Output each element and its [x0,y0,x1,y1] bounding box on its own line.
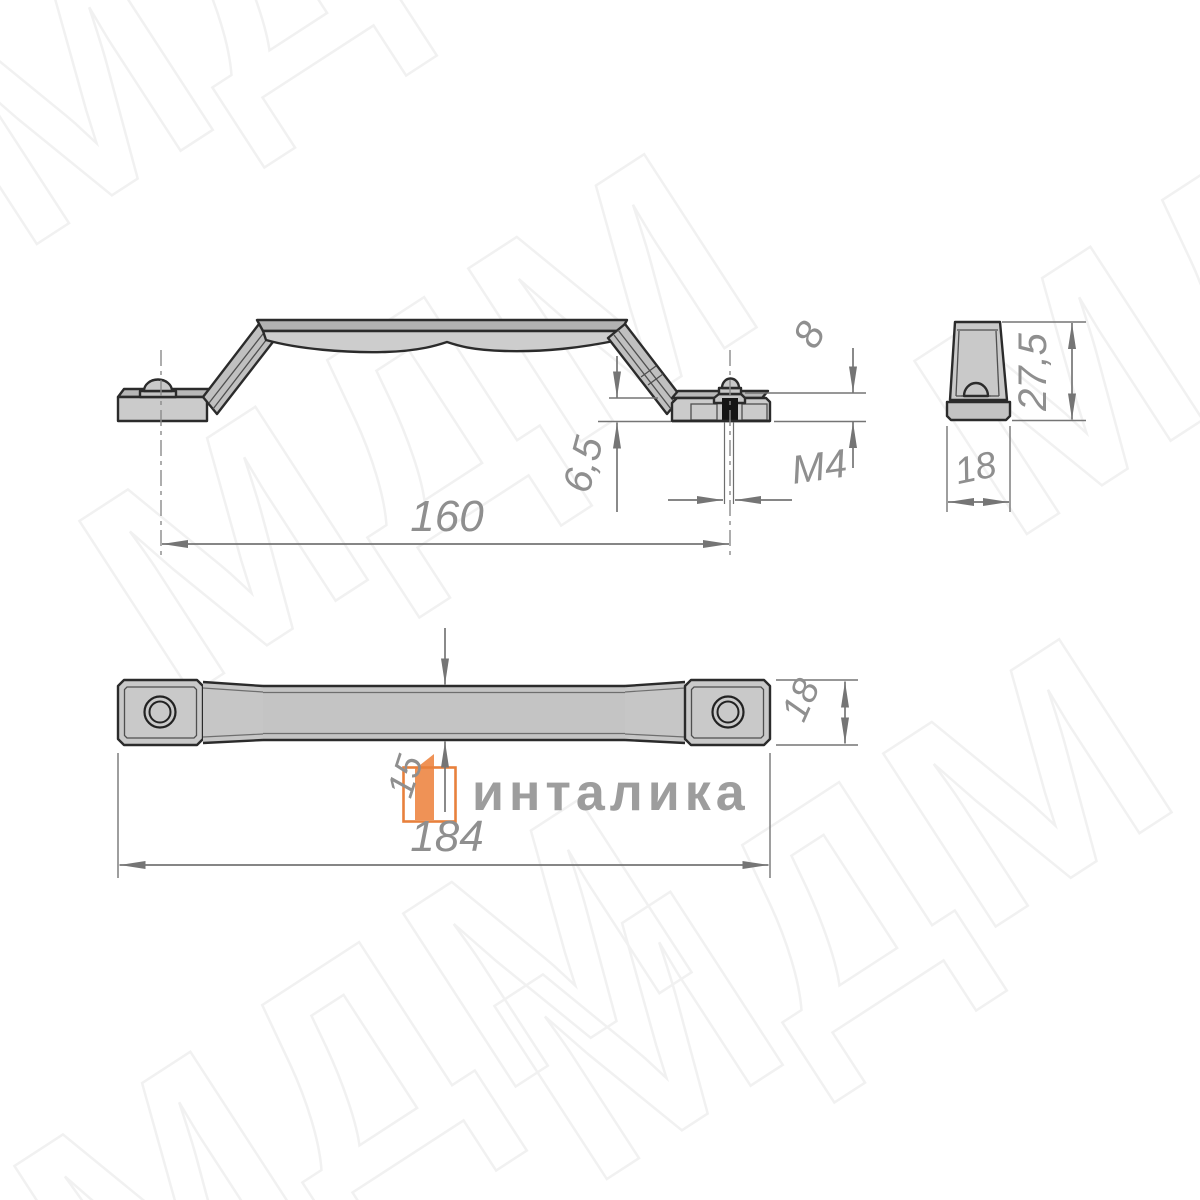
dimension-label: 160 [410,492,484,541]
dimension-label: 184 [410,812,483,861]
plan-view [118,680,770,745]
plan-left-block [118,680,203,745]
plan-left-transition [203,682,263,743]
logo-text: инталика [472,764,750,822]
plan-right-transition [625,682,685,743]
dimension-label: M4 [789,441,850,492]
technical-drawing-page: МДМ МДМ МДМ МДМ МДМ инталика [0,0,1200,1200]
technical-drawing-canvas: МДМ МДМ МДМ МДМ МДМ инталика [0,0,1200,1200]
end-view-body [947,322,1010,420]
plan-right-block [685,680,770,745]
plan-bar [263,686,625,740]
dimension-label: 27,5 [1011,332,1055,412]
